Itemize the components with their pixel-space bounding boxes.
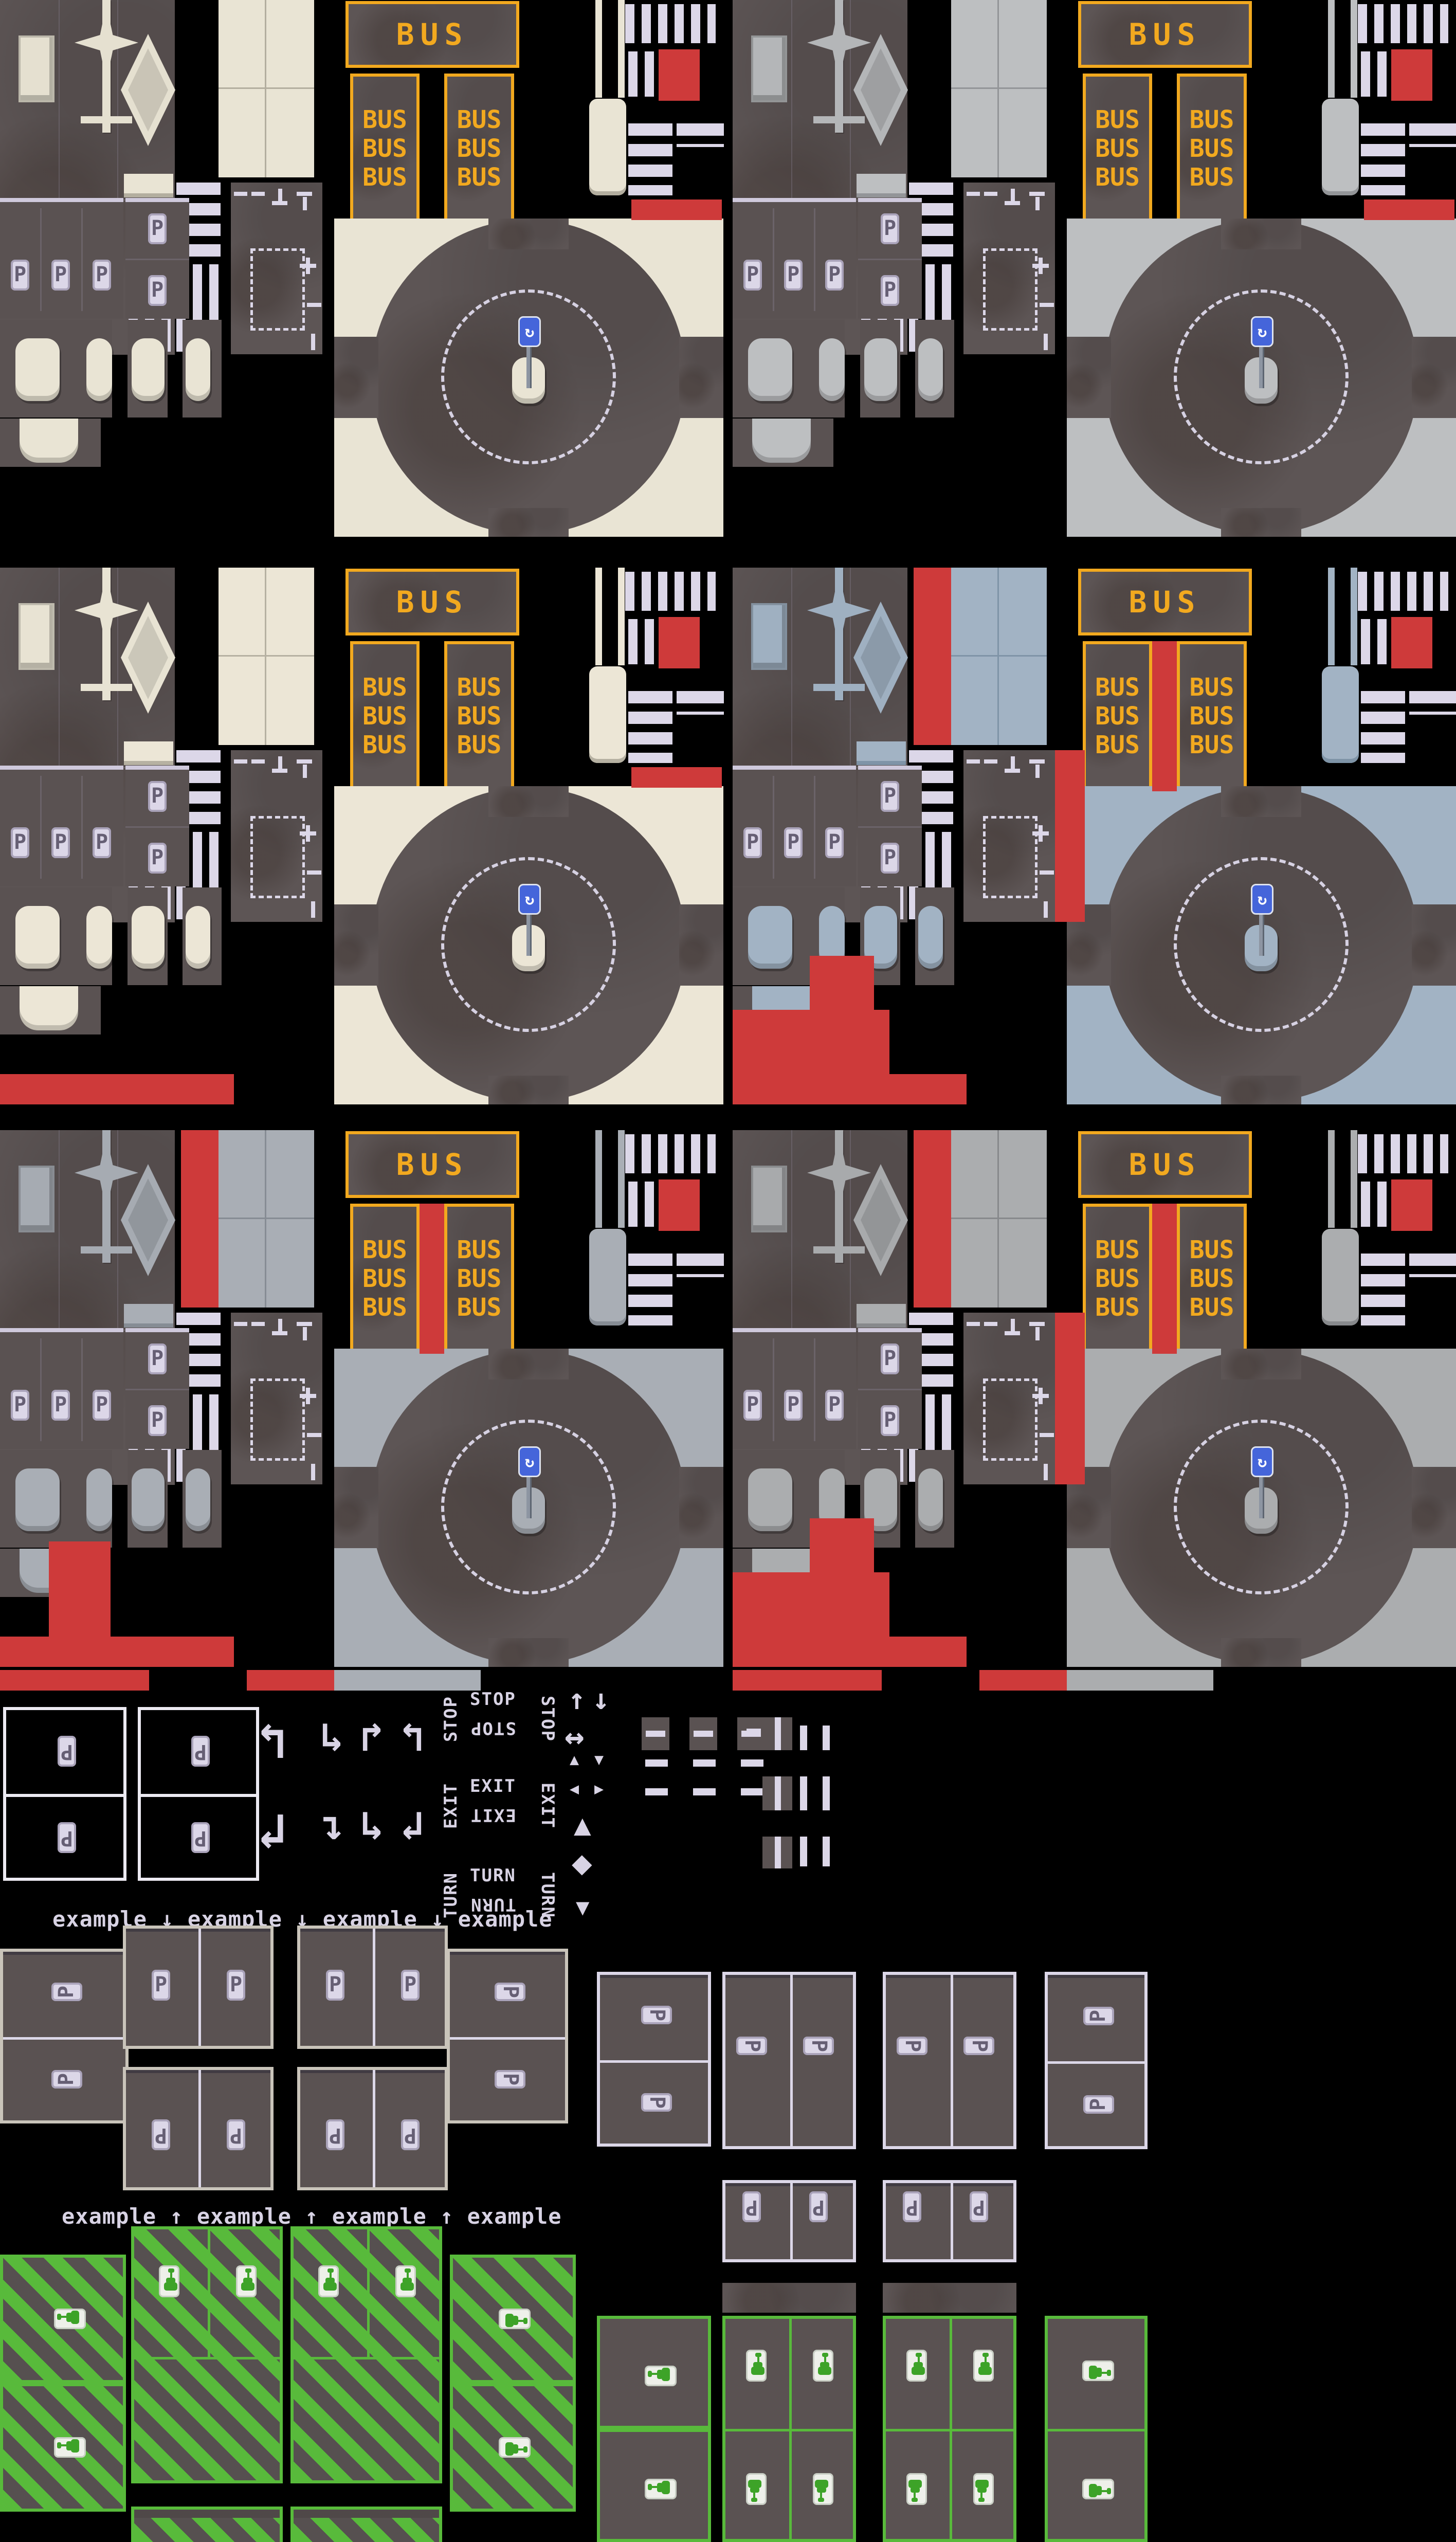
road-word-vertical-right: STOP xyxy=(537,1696,558,1742)
bus-stop-header-label: BUS xyxy=(349,1134,516,1195)
island-block xyxy=(0,887,112,985)
bus-stop-header-label: BUS xyxy=(1081,4,1249,65)
stall-divider xyxy=(725,2429,853,2431)
ev-charging-car-icon xyxy=(906,2473,927,2505)
parking-block: PP xyxy=(858,198,922,319)
stall-divider xyxy=(450,2037,565,2040)
lane-line xyxy=(775,1717,781,1750)
marking-dash xyxy=(1029,759,1045,764)
bus-stop-header-label: BUS xyxy=(349,4,516,65)
parking-stall-tile: PP xyxy=(0,1949,129,2123)
ev-striped-stall-tile xyxy=(0,2383,126,2512)
stall-divider xyxy=(1048,2429,1144,2431)
lane-line-tile xyxy=(762,1717,792,1750)
parking-p-badge: P xyxy=(191,1736,210,1767)
marking-dash xyxy=(307,870,321,875)
bus-lane-letter: BUS xyxy=(457,107,502,133)
parking-p-badge: P xyxy=(881,1405,899,1436)
roundabout-block: ↻ xyxy=(1067,1349,1456,1667)
marking-dash xyxy=(1005,769,1020,773)
road-stub-bottom xyxy=(488,1076,569,1104)
ev-car-cabin xyxy=(513,2444,518,2454)
red-placeholder-tile-rightTile xyxy=(1391,617,1432,668)
bus-stop-header: BUS xyxy=(1078,569,1252,635)
bus-lane: BUSBUSBUS xyxy=(1083,74,1152,224)
traffic-island xyxy=(86,338,112,401)
marking-dash xyxy=(311,1464,315,1480)
bus-lane-letter: BUS xyxy=(1095,703,1140,729)
ev-car-body xyxy=(164,2282,177,2291)
bus-lane-letter: BUS xyxy=(1190,732,1234,758)
tile-seam xyxy=(59,568,60,768)
traffic-island-end xyxy=(752,419,811,463)
ev-charging-car-icon xyxy=(159,2265,179,2297)
parking-block: PP xyxy=(858,1328,922,1449)
marking-dash xyxy=(251,1322,265,1326)
bus-lane-letter: BUS xyxy=(1095,732,1140,758)
small-tiles-section: PPPP↰↲↳↱↰↴↳↲STOPSTOPSTOPSTOPEXITEXITEXIT… xyxy=(0,1676,1456,1923)
sidewalk-strip xyxy=(1351,568,1357,665)
road-stub-top xyxy=(488,786,569,817)
stall-divider xyxy=(1048,2061,1144,2064)
parking-block: PPP xyxy=(0,766,123,886)
bus-stop-header: BUS xyxy=(1078,1131,1252,1198)
road-stub-right xyxy=(1412,904,1456,986)
parking-p-badge: P xyxy=(401,1970,420,2001)
bus-lane: BUSBUSBUS xyxy=(1083,1204,1152,1354)
turn-arrow-icon: ↳ xyxy=(360,1806,396,1852)
crosswalk-tile-rotated xyxy=(625,572,716,611)
stall-divider xyxy=(773,1338,774,1441)
star-shape xyxy=(807,4,871,81)
road-stub-bottom xyxy=(488,508,569,537)
island-block xyxy=(0,986,101,1034)
parking-p-badge: P xyxy=(881,781,899,812)
island-block xyxy=(915,887,954,985)
red-placeholder-tile-rightTile xyxy=(1391,1179,1432,1231)
road-stub-right xyxy=(1412,1467,1456,1548)
parking-p-badge: P xyxy=(903,2191,921,2222)
sidewalk-strip-rounded xyxy=(1322,666,1359,763)
crosswalk-tile-rotated xyxy=(1358,4,1448,43)
star-shape xyxy=(75,572,138,649)
marking-dash xyxy=(278,1319,282,1332)
pillar-ornament xyxy=(19,35,54,102)
parking-p-badge: P xyxy=(1083,2007,1114,2025)
parking-p-badge: P xyxy=(825,1390,844,1421)
bus-lane-letter: BUS xyxy=(362,107,407,133)
traffic-island-end xyxy=(20,419,78,463)
ev-striped-stall-tile xyxy=(131,2226,283,2483)
bus-lane: BUSBUSBUS xyxy=(1177,1204,1247,1354)
curb-line xyxy=(733,766,856,770)
bus-lane-letter: BUS xyxy=(362,703,407,729)
roundabout-sign-icon: ↻ xyxy=(518,884,541,915)
ev-car-cabin xyxy=(977,2487,987,2493)
parking-p-badge: P xyxy=(227,2119,245,2150)
ev-car-cabin xyxy=(1096,2486,1102,2495)
example-parking-section: example ↓ example ↓ example ↓ exampleexa… xyxy=(0,1902,1456,2273)
marking-dash xyxy=(1011,1319,1015,1332)
sidewalk-strip xyxy=(595,1130,602,1228)
traffic-island xyxy=(186,338,210,401)
ev-striped-stall-tile xyxy=(290,2226,442,2483)
marking-dash xyxy=(278,189,282,202)
ev-plug-head xyxy=(648,2484,652,2490)
ev-car-body xyxy=(71,2439,79,2453)
stall-divider xyxy=(81,1338,83,1441)
parking-p-badge: P xyxy=(93,260,111,290)
parking-p-badge: P xyxy=(93,827,111,858)
curb-line xyxy=(733,198,856,202)
marking-dash xyxy=(307,303,321,307)
ev-plug-head xyxy=(648,2371,652,2377)
marking-dash xyxy=(307,1433,321,1437)
red-placeholder-tile-rightStrip xyxy=(631,767,722,788)
ev-plug-head xyxy=(327,2268,334,2273)
tileset-spritesheet: { "document": { "type": "game-tileset-sp… xyxy=(0,0,1456,2542)
red-placeholder-tile-rightStrip xyxy=(631,199,722,220)
marking-dash xyxy=(234,1322,247,1326)
parking-p-badge: P xyxy=(825,827,844,858)
road-stub-left xyxy=(334,1467,378,1548)
bus-lane: BUSBUSBUS xyxy=(1083,641,1152,791)
parking-p-badge: P xyxy=(11,1390,29,1421)
lane-bars-tile xyxy=(1361,51,1390,97)
pillar-ornament xyxy=(751,1166,787,1232)
curb-tile xyxy=(857,741,906,765)
marking-dash xyxy=(1040,1433,1054,1437)
crosswalk-tile-rotated xyxy=(628,123,672,195)
crosswalk-tile-rotated xyxy=(1361,691,1405,763)
parking-p-badge: P xyxy=(881,275,899,306)
sidewalk-seam xyxy=(951,655,1047,657)
marking-dash xyxy=(984,1322,997,1326)
bus-stop-header-label: BUS xyxy=(349,572,516,632)
bus-lane-letter: BUS xyxy=(362,1266,407,1292)
curb-line xyxy=(134,2510,280,2518)
traffic-island xyxy=(86,1468,112,1531)
bus-lane-letter: BUS xyxy=(1190,165,1234,190)
ev-charging-car-icon xyxy=(1082,2361,1114,2381)
road-arrow-marking: ◆ xyxy=(572,1846,608,1882)
marking-dash xyxy=(1005,201,1020,205)
parking-p-badge: P xyxy=(148,213,167,244)
ev-car-body xyxy=(751,2367,765,2375)
parking-p-badge: P xyxy=(495,1983,525,2001)
sheet-cream-clean: BUSBUSBUSBUSBUSBUSBUSPPPPP↻ xyxy=(0,0,723,537)
ev-car-cabin xyxy=(166,2278,175,2283)
road-word-horizontal: EXIT xyxy=(470,1776,516,1796)
lane-dash xyxy=(747,1729,761,1735)
red-placeholder-tile-bottomStrip xyxy=(733,1074,967,1104)
ev-charging-car-icon xyxy=(746,2473,767,2505)
ev-charging-car-icon xyxy=(499,2437,531,2458)
lane-line xyxy=(800,1837,807,1866)
stall-divider xyxy=(81,208,83,311)
ev-car-body xyxy=(241,2282,254,2291)
lane-dash xyxy=(694,1731,713,1737)
parking-p-badge: P xyxy=(742,2191,761,2222)
island-block xyxy=(0,1450,112,1548)
roundabout-sign-icon: ↻ xyxy=(518,1446,541,1477)
star-ornament xyxy=(807,0,871,133)
bus-lane-letter: BUS xyxy=(457,703,502,729)
stall-divider xyxy=(40,208,42,311)
curb-line xyxy=(733,1328,856,1332)
bus-lane-letter: BUS xyxy=(1190,1266,1234,1292)
road-stub-right xyxy=(679,1467,723,1548)
ev-car-cabin xyxy=(753,2362,762,2368)
road-word-horizontal: STOP xyxy=(470,1689,516,1710)
ev-car-cabin xyxy=(243,2278,252,2283)
lane-dash-tile xyxy=(689,1717,717,1750)
curb-line xyxy=(0,766,123,770)
ev-car-body xyxy=(662,2368,670,2381)
star-ornament xyxy=(75,568,138,700)
star-ornament xyxy=(807,568,871,700)
stall-divider xyxy=(198,1929,201,2046)
island-block xyxy=(128,320,168,417)
ev-car-body xyxy=(912,2367,925,2375)
bus-stop-header-label: BUS xyxy=(1081,572,1249,632)
sidewalk-strip xyxy=(1351,0,1357,98)
ev-plug-head xyxy=(57,2442,61,2448)
red-placeholder-tile-leftColumn xyxy=(181,1130,219,1308)
ev-outline-stall-tile xyxy=(1045,2316,1148,2542)
bus-lane-letter: BUS xyxy=(362,1295,407,1320)
ev-plug-head xyxy=(818,2498,824,2502)
crosswalk-tile-rotated xyxy=(625,4,716,43)
roundabout-sign-icon: ↻ xyxy=(1251,1446,1273,1477)
parking-stall-tile: PP xyxy=(123,2067,274,2190)
ev-plug-head xyxy=(523,2318,527,2324)
red-placeholder-tile-rightTile xyxy=(1391,49,1432,101)
bus-lane: BUSBUSBUS xyxy=(1177,74,1247,224)
traffic-island xyxy=(132,338,165,401)
parking-p-badge: P xyxy=(11,827,29,858)
red-placeholder-tile-betweenLanes xyxy=(1152,1204,1177,1354)
curb-line xyxy=(858,766,922,770)
road-stub-bottom xyxy=(488,1638,569,1667)
bus-lane-letter: BUS xyxy=(457,1237,502,1263)
lane-dash xyxy=(741,1788,763,1795)
lane-bars-tile xyxy=(677,123,724,147)
bus-lane-letter: BUS xyxy=(1190,1237,1234,1263)
bus-lane-letter: BUS xyxy=(362,165,407,190)
curb-tile xyxy=(722,2283,856,2313)
parking-p-badge: P xyxy=(51,2070,82,2089)
marking-dash xyxy=(251,759,265,764)
stall-divider xyxy=(790,1975,793,2146)
curb-tile xyxy=(857,1304,906,1328)
ev-car-cabin xyxy=(657,2370,663,2379)
road-stub-bottom xyxy=(1221,1076,1301,1104)
ev-plug-head xyxy=(523,2446,527,2453)
crosswalk-tile-rotated xyxy=(625,1134,716,1173)
road-word-cluster-exit: EXITEXITEXITEXIT xyxy=(443,1775,551,1839)
parking-stall-tile: PP xyxy=(722,1972,856,2149)
marking-dash xyxy=(234,192,247,196)
ev-striped-stall-tile xyxy=(450,2255,576,2383)
ev-car-cabin xyxy=(820,2362,829,2368)
sidewalk-strip xyxy=(618,568,625,665)
stall-divider xyxy=(125,259,189,260)
tile-seam xyxy=(791,0,792,201)
ev-plug-head xyxy=(245,2268,251,2273)
bus-stop-header-label: BUS xyxy=(1081,1134,1249,1195)
tile-seam xyxy=(59,1130,60,1331)
star-ornament xyxy=(75,1130,138,1263)
parking-p-badge: P xyxy=(148,781,167,812)
stall-divider xyxy=(134,2357,280,2359)
bus-lane-letter: BUS xyxy=(457,675,502,700)
parking-p-badge: P xyxy=(825,260,844,290)
bus-lane-letter: BUS xyxy=(457,136,502,161)
star-shape xyxy=(75,1134,138,1211)
ev-charging-car-icon xyxy=(973,2350,994,2382)
ev-car-cabin xyxy=(914,2362,923,2368)
turn-arrow-icon: ↲ xyxy=(257,1806,298,1863)
road-stub-right xyxy=(1412,337,1456,418)
parking-p-badge: P xyxy=(51,827,70,858)
bus-lane-letter: BUS xyxy=(1095,675,1140,700)
star-cross-arm xyxy=(813,116,865,123)
bus-lane: BUSBUSBUS xyxy=(444,74,514,224)
lane-dash xyxy=(645,1788,668,1795)
parking-stall-tile: PP xyxy=(447,1949,568,2123)
lane-bars-tile xyxy=(628,1182,657,1227)
bus-lane-letter: BUS xyxy=(1095,107,1140,133)
road-stub-top xyxy=(1221,786,1301,817)
red-placeholder-tile-betweenLanes xyxy=(1152,641,1177,791)
parking-p-badge: P xyxy=(51,1983,82,2001)
ev-car-cabin xyxy=(980,2362,990,2368)
traffic-island xyxy=(748,338,792,401)
island-block xyxy=(183,1450,222,1548)
bus-lane-letter: BUS xyxy=(1190,1295,1234,1320)
sheet-gray-flagged: BUSBUSBUSBUSBUSBUSBUSPPPPP↻ xyxy=(733,1130,1456,1667)
ev-plug-head xyxy=(916,2353,922,2357)
stall-divider xyxy=(198,2070,201,2187)
curb-line xyxy=(125,1328,189,1332)
ev-plug-head xyxy=(405,2268,411,2273)
sidewalk-seam xyxy=(219,87,314,89)
island-block xyxy=(915,1450,954,1548)
road-word-vertical-left: STOP xyxy=(441,1696,461,1742)
road-word-cluster-stop: STOPSTOPSTOPSTOP xyxy=(443,1688,551,1752)
stall-divider xyxy=(367,2229,370,2358)
marking-dash xyxy=(967,192,980,196)
sheet-gray-clean: BUSBUSBUSBUSBUSBUSBUSPPPPP↻ xyxy=(733,0,1456,537)
marking-dash xyxy=(967,1322,980,1326)
bus-lane-letter: BUS xyxy=(362,136,407,161)
bus-lane-letter: BUS xyxy=(457,165,502,190)
dashed-box-marking xyxy=(983,816,1038,898)
bus-lane: BUSBUSBUS xyxy=(350,1204,420,1354)
bus-stop-header: BUS xyxy=(345,569,519,635)
marking-dash xyxy=(984,192,997,196)
bus-lane-letter: BUS xyxy=(1095,1237,1140,1263)
stall-divider xyxy=(814,1338,815,1441)
stall-divider xyxy=(886,2429,1013,2431)
ev-charging-car-icon xyxy=(395,2265,416,2297)
stall-divider xyxy=(951,1975,953,2146)
bus-lane: BUSBUSBUS xyxy=(444,1204,514,1354)
parking-stall-tile: PP xyxy=(883,1972,1016,2149)
ev-outline-stall-tile xyxy=(883,2316,1016,2542)
lane-dash xyxy=(741,1759,763,1767)
stall-divider xyxy=(814,776,815,879)
road-word-horizontal: TURN xyxy=(470,1865,516,1886)
ev-plug-head xyxy=(755,2353,761,2357)
ev-car-body xyxy=(71,2311,79,2324)
lane-line xyxy=(775,1776,781,1810)
lane-bars-tile xyxy=(1361,619,1390,664)
curb-line xyxy=(125,198,189,202)
traffic-island xyxy=(748,906,792,969)
parking-p-badge: P xyxy=(963,2037,994,2055)
road-word-vertical-right: EXIT xyxy=(537,1783,558,1829)
parking-block: PP xyxy=(125,1328,189,1449)
road-stub-right xyxy=(679,337,723,418)
ev-car-cabin xyxy=(66,2441,72,2450)
ev-charging-car-icon xyxy=(318,2265,339,2297)
parking-p-badge: P xyxy=(495,2070,525,2089)
marking-dash xyxy=(278,756,282,770)
ev-charging-section xyxy=(0,2226,1456,2542)
lane-line-tile xyxy=(762,1837,792,1868)
stall-divider xyxy=(773,776,774,879)
stall-divider xyxy=(600,2060,708,2063)
roundabout-block: ↻ xyxy=(1067,786,1456,1104)
marking-dash xyxy=(1005,1331,1020,1335)
sidewalk-strip-rounded xyxy=(589,666,626,763)
curb-line xyxy=(125,766,189,770)
sidewalk-strip xyxy=(618,0,625,98)
bus-lane-letter: BUS xyxy=(457,1266,502,1292)
marking-dash xyxy=(1044,901,1048,918)
marking-dash xyxy=(303,197,307,210)
example-caption-up: example ↑ example ↑ example ↑ example xyxy=(62,2204,562,2229)
ev-car-cabin xyxy=(403,2278,412,2283)
traffic-island xyxy=(15,1468,60,1531)
bus-lane: BUSBUSBUS xyxy=(1177,641,1247,791)
lane-line-tile xyxy=(762,1776,792,1810)
ev-charging-car-icon xyxy=(54,2437,86,2458)
ev-car-cabin xyxy=(1096,2368,1102,2377)
tile-seam xyxy=(791,568,792,768)
island-block xyxy=(0,320,112,417)
parking-block: PPP xyxy=(733,1328,856,1449)
roundabout-sign-icon: ↻ xyxy=(518,316,541,347)
sidewalk-block xyxy=(219,0,314,177)
road-stub-top xyxy=(1221,219,1301,249)
traffic-island xyxy=(15,906,60,969)
crosswalk-tile-rotated xyxy=(628,691,672,763)
ev-charging-car-icon xyxy=(54,2309,86,2329)
parking-stall-tile: PP xyxy=(597,1972,711,2147)
sidewalk-strip xyxy=(618,1130,625,1228)
star-ornament xyxy=(807,1130,871,1263)
parking-p-badge: P xyxy=(51,1390,70,1421)
bus-lane-letter: BUS xyxy=(362,732,407,758)
island-block xyxy=(915,320,954,417)
road-stub-top xyxy=(1221,1349,1301,1379)
sidewalk-seam xyxy=(219,1218,314,1219)
ev-car-cabin xyxy=(750,2487,759,2493)
roundabout-block: ↻ xyxy=(334,219,723,537)
